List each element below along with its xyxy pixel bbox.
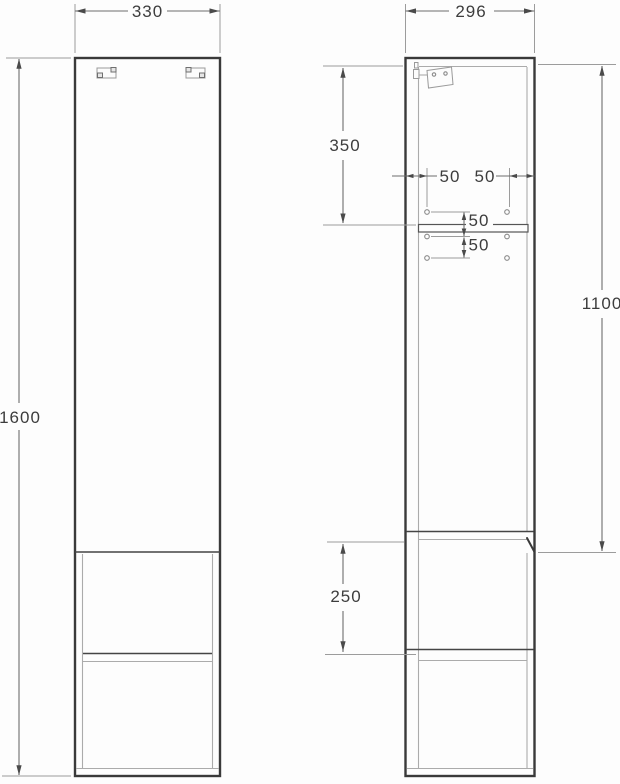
front-height-label: 1600 <box>0 408 41 427</box>
hanger-screw <box>186 68 191 73</box>
drawing-canvas: 330 296 1600 350 1100 250 50 50 <box>0 0 620 784</box>
side-shelf-panel-lines <box>406 532 534 650</box>
hanger-screw <box>98 73 103 78</box>
wall-hanger-left <box>97 68 116 79</box>
side-cabinet-outline <box>406 58 535 776</box>
pin-hole <box>505 256 510 261</box>
dimension-front-height: 1600 <box>0 58 71 776</box>
top-to-shelf-label: 350 <box>329 136 360 155</box>
bracket-hole <box>444 72 447 75</box>
pin-hole <box>505 210 510 215</box>
bracket-hole <box>432 73 435 76</box>
hole-inset-right-label: 50 <box>475 167 496 186</box>
front-inner-panel-lines <box>76 554 219 769</box>
hole-pitch-lower-label: 50 <box>469 236 490 255</box>
dimension-hole-pitch: 50 50 <box>431 211 493 258</box>
bracket-clip <box>414 70 420 79</box>
pin-hole <box>505 234 510 239</box>
front-cabinet-outline <box>75 58 220 776</box>
dimension-niche-height: 250 <box>325 542 416 655</box>
pin-hole <box>425 234 430 239</box>
bracket-clip-tab <box>415 63 419 69</box>
side-inner-panel-lines <box>407 67 534 769</box>
front-view <box>75 58 220 776</box>
arrowheads <box>462 213 467 258</box>
niche-height-label: 250 <box>330 587 361 606</box>
hanger-screw <box>200 73 205 78</box>
bracket-plate <box>427 67 453 88</box>
side-depth-label: 296 <box>455 2 486 21</box>
technical-drawing-page: 330 296 1600 350 1100 250 50 50 <box>0 0 620 784</box>
hole-inset-left-label: 50 <box>440 167 461 186</box>
side-view <box>406 58 535 776</box>
dimension-front-width: 330 <box>75 2 220 53</box>
dimension-side-depth: 296 <box>406 2 535 53</box>
dimension-top-to-shelf: 350 <box>323 66 416 225</box>
hanger-screw <box>111 68 116 73</box>
arrowheads <box>406 174 534 178</box>
dimension-door-height: 1100 <box>538 65 620 553</box>
pin-hole <box>425 210 430 215</box>
wall-hanger-right <box>186 68 205 79</box>
hole-pitch-upper-label: 50 <box>469 211 490 230</box>
front-width-label: 330 <box>132 2 163 21</box>
pin-hole <box>425 256 430 261</box>
door-height-label: 1100 <box>582 294 620 313</box>
dimension-hole-insets: 50 50 <box>392 167 535 207</box>
